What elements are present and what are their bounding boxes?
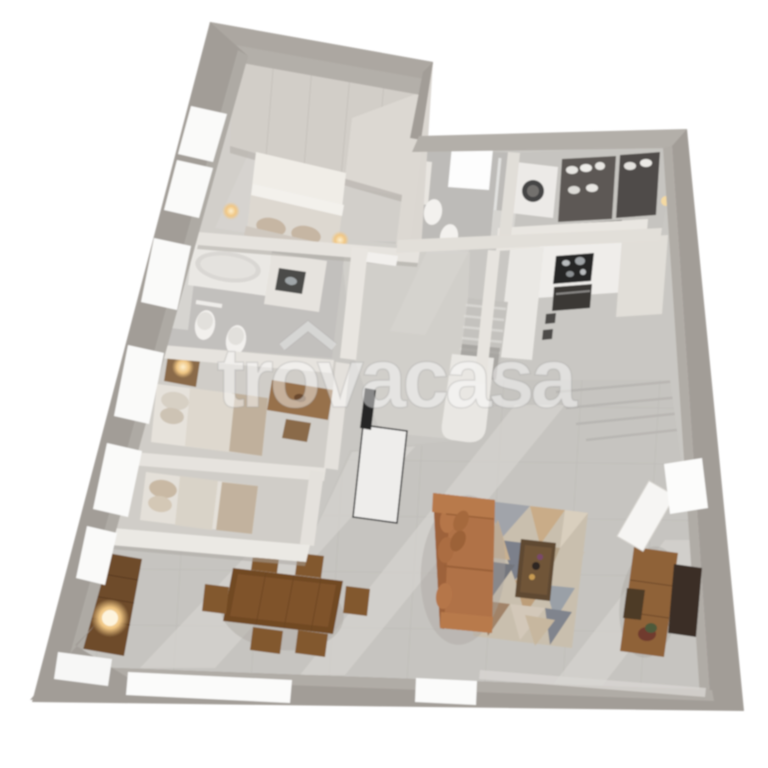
svg-text:trovacasa: trovacasa: [217, 331, 579, 425]
